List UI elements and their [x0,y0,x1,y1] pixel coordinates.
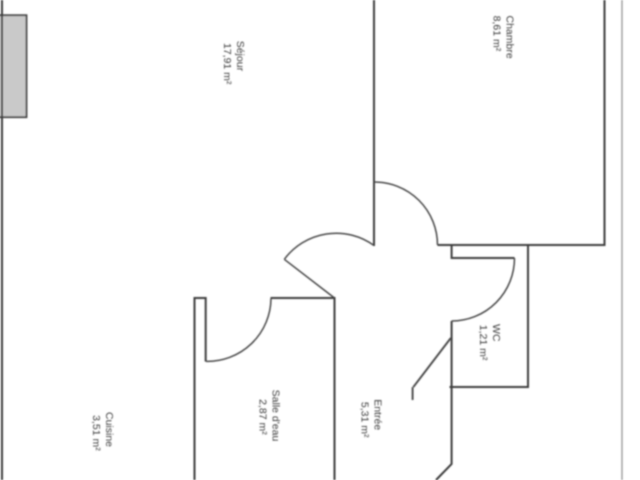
svg-text:Salle d'eau: Salle d'eau [270,390,282,442]
svg-text:Chambre: Chambre [503,16,515,59]
svg-text:8,61 m²: 8,61 m² [490,16,502,52]
svg-text:5,31 m²: 5,31 m² [358,402,370,438]
svg-text:WC: WC [490,324,502,342]
svg-text:2,87 m²: 2,87 m² [257,399,269,435]
svg-text:Cuisine: Cuisine [103,412,115,447]
svg-text:17,91 m²: 17,91 m² [221,43,233,85]
svg-text:Séjour: Séjour [234,41,246,72]
svg-text:3,51 m²: 3,51 m² [90,415,102,451]
svg-text:Entrée: Entrée [371,399,383,430]
svg-text:1,21 m²: 1,21 m² [477,325,489,361]
